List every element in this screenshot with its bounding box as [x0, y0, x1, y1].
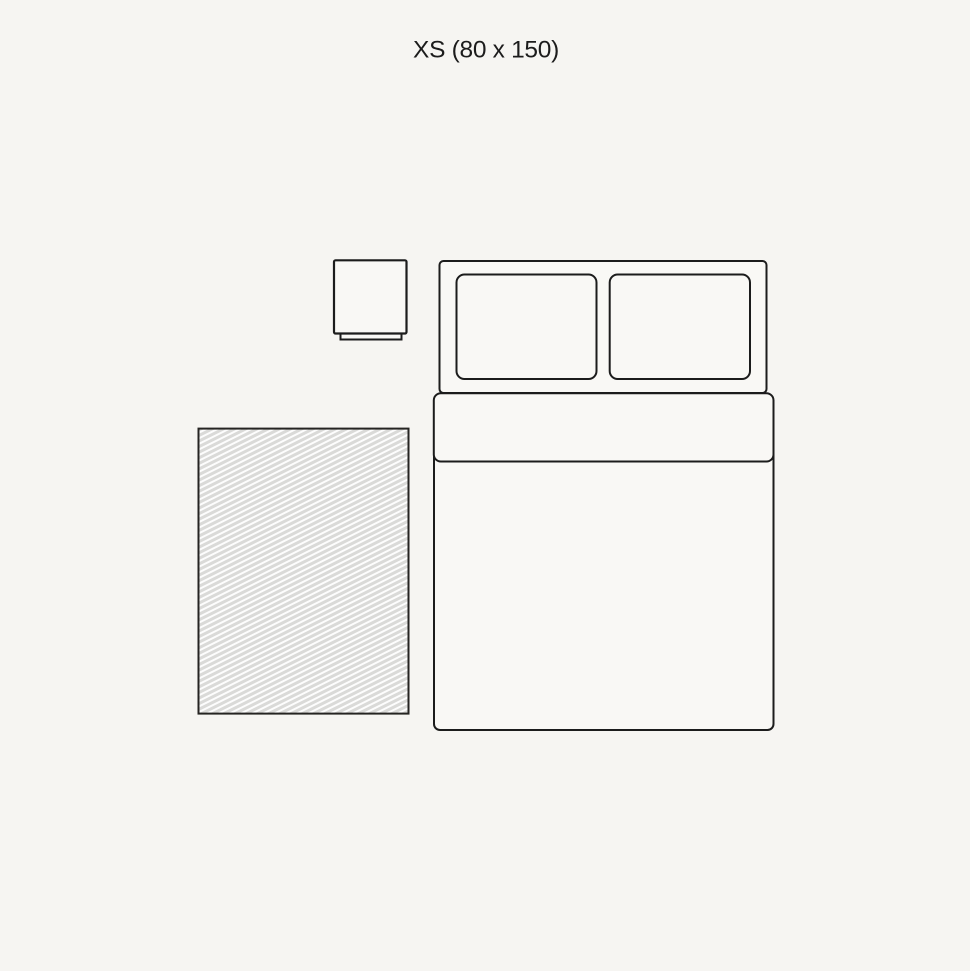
svg-text:XS (80 x 150): XS (80 x 150)	[413, 37, 559, 64]
